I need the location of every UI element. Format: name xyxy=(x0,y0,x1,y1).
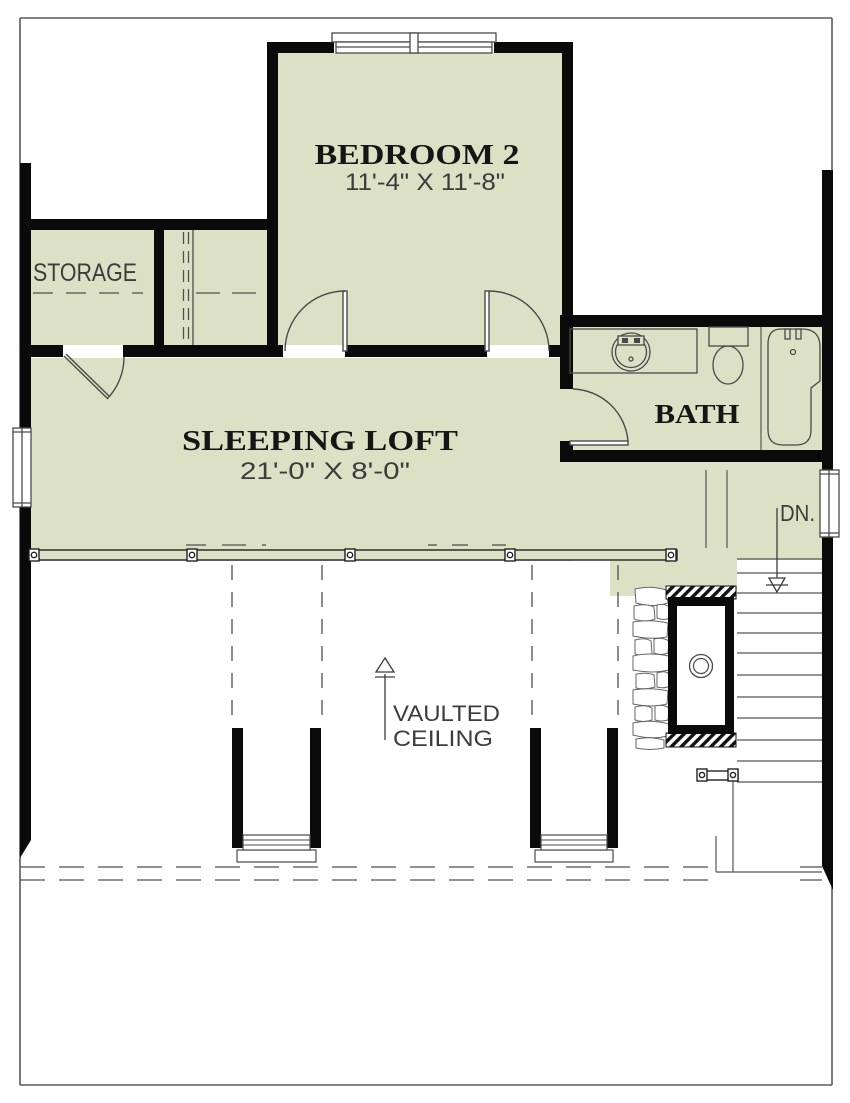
wall-loft-north-1 xyxy=(20,345,63,357)
vaulted-ceiling-label-line1: VAULTED xyxy=(393,701,500,726)
wall-loft-north-3 xyxy=(345,345,487,357)
storage-label: STORAGE xyxy=(33,259,137,287)
wall-bath-north xyxy=(562,315,833,327)
chimney-sill-bottom xyxy=(666,733,736,747)
bedroom2-floor xyxy=(278,53,562,345)
chimney xyxy=(633,586,736,750)
window-icon-loft-west xyxy=(13,428,31,507)
wall-exterior-left-upper xyxy=(20,163,31,428)
wall-bath-south xyxy=(560,450,833,462)
floor-plan-drawing: BEDROOM 2 11'-4" X 11'-8" SLEEPING LOFT … xyxy=(0,0,850,1103)
stairs-down-label: DN. xyxy=(780,500,815,526)
window-icon-dormer-left xyxy=(243,835,310,850)
dormer-sill-left xyxy=(237,850,316,862)
window-icon-bedroom-north xyxy=(332,33,496,53)
wall-storage-east xyxy=(154,230,164,352)
bedroom2-label: BEDROOM 2 xyxy=(315,139,520,171)
wall-taper-bottom-left xyxy=(20,840,31,858)
dormer-bay-left xyxy=(232,728,321,862)
wall-exterior-right-lower xyxy=(822,537,833,866)
stair-lower-railing xyxy=(697,769,738,781)
window-icon-dormer-right xyxy=(541,835,607,850)
wall-bedroom2-west xyxy=(267,42,278,352)
storage-hall-floor xyxy=(31,230,267,345)
wall-storage-north xyxy=(20,219,268,230)
wall-loft-north-2 xyxy=(123,345,283,357)
vaulted-ceiling-arrow xyxy=(375,658,395,740)
sleeping-loft-label: SLEEPING LOFT xyxy=(182,425,458,457)
bath-label: BATH xyxy=(655,399,740,429)
floor-plan-page: BEDROOM 2 11'-4" X 11'-8" SLEEPING LOFT … xyxy=(0,0,850,1103)
stone-hatch xyxy=(633,587,670,749)
bedroom2-dimensions: 11'-4" X 11'-8" xyxy=(345,169,505,196)
dormer-bay-right xyxy=(530,728,618,862)
dormer-sill-right xyxy=(535,850,613,862)
sleeping-loft-dimensions: 21'-0" X 8'-0" xyxy=(240,458,410,485)
vaulted-ceiling-label-line2: CEILING xyxy=(393,726,493,751)
window-icon-landing-east xyxy=(820,470,839,537)
wall-bedroom2-east xyxy=(562,42,573,327)
